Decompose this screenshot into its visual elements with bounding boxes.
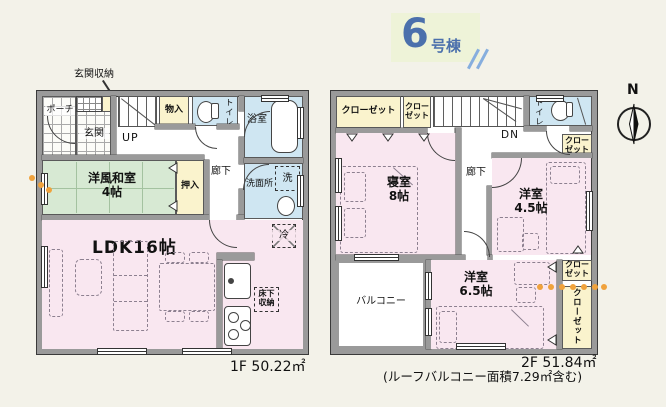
utility-dot	[38, 182, 44, 188]
toilet-door-arc	[195, 127, 217, 149]
wall-segment	[570, 126, 592, 131]
window	[41, 246, 48, 288]
furniture-dining-table	[159, 263, 215, 311]
utility-dot	[548, 284, 554, 290]
tatami-room-name: 洋風和室	[57, 172, 167, 185]
closet-door-marker-icon	[547, 334, 557, 346]
closet-door-marker-icon	[346, 133, 358, 142]
western-room-45-label: 洋室	[496, 188, 566, 201]
entrance-storage-label: 玄関収納	[74, 69, 114, 80]
utility-dot	[559, 284, 565, 290]
closet-door-marker-icon	[572, 245, 584, 254]
furniture-sofa-table	[113, 241, 148, 331]
fridge-label: 冷	[272, 230, 296, 241]
wall-segment	[524, 126, 546, 131]
furniture-chair	[165, 311, 185, 322]
closet-a-label: クローゼット	[336, 107, 401, 117]
stairs-down	[433, 96, 529, 127]
furniture-chair	[189, 252, 209, 263]
furniture-armchair	[75, 259, 102, 296]
toilet-door-arc	[546, 131, 570, 155]
toilet-tank-icon	[211, 103, 219, 119]
floor2-plan: クローゼット クロー ゼット DN トイレ クロー ゼット	[331, 91, 597, 354]
closet-door-marker-icon	[418, 133, 430, 142]
toilet-tank-icon	[566, 102, 573, 117]
window	[536, 95, 564, 102]
furniture-desk	[497, 217, 524, 252]
wall-segment	[217, 124, 239, 129]
bedroom-label: 寝室	[364, 176, 434, 189]
sliding-door-marker-icon	[168, 162, 178, 174]
utility-dot	[46, 187, 52, 193]
balcony-label: バルコニー	[341, 296, 421, 307]
shoe-cabinet	[76, 96, 102, 112]
window	[297, 175, 304, 207]
kitchen-counter-cap	[217, 253, 254, 260]
floor2-area-note: (ルーフバルコニー面積7.29㎡含む)	[383, 370, 582, 384]
window	[335, 206, 342, 241]
western-room-65-size-label: 6.5帖	[441, 285, 511, 298]
window	[425, 272, 432, 300]
floor1-area-label: 1F 50.22㎡	[230, 360, 306, 375]
furniture-pillow	[439, 311, 457, 343]
closet-e-label: クローゼット	[571, 288, 580, 348]
hallway-label-1f: 廊下	[211, 166, 231, 177]
window	[97, 348, 147, 355]
furniture-divider	[114, 301, 147, 302]
floorplan-canvas: 6 号棟 玄関収納 ポーチ 玄関 UP 物入 トイレ	[0, 0, 666, 407]
closet-b-label-2: ゼット	[403, 112, 431, 121]
building-badge: 6 号棟	[391, 13, 480, 62]
utility-dot	[581, 284, 587, 290]
utility-dot	[601, 284, 607, 290]
oshiire-label: 押入	[176, 182, 204, 192]
closet-d-label-2: ゼット	[562, 270, 592, 279]
wall-segment	[217, 260, 222, 349]
closet-door-marker-icon	[382, 133, 394, 142]
closet-door-marker-icon	[547, 261, 557, 273]
window	[297, 107, 304, 139]
window	[335, 158, 342, 193]
storage-label: 物入	[159, 106, 189, 116]
burner-icon	[228, 329, 239, 340]
furniture-chair	[189, 311, 209, 322]
sink-icon	[277, 196, 295, 216]
stairs-down-label: DN	[501, 130, 519, 142]
window	[354, 254, 399, 261]
badge-suffix: 号棟	[431, 35, 461, 56]
utility-dot	[570, 284, 576, 290]
window	[456, 343, 506, 350]
furniture-divider	[114, 275, 147, 276]
badge-number: 6	[401, 11, 429, 57]
utility-dot	[29, 175, 35, 181]
sliding-door-marker-icon	[168, 200, 178, 212]
window	[261, 95, 289, 102]
wall-segment	[204, 160, 209, 215]
furniture-chair	[522, 233, 539, 250]
furniture-chair	[516, 287, 536, 303]
furniture-desk	[514, 262, 550, 285]
burner-icon	[240, 320, 251, 331]
stairs-up-label: UP	[122, 132, 139, 144]
burner-icon	[228, 312, 239, 323]
window	[586, 191, 593, 231]
entrance-label: 玄関	[79, 128, 109, 139]
kitchen-stove	[224, 306, 251, 346]
underfloor-storage-label-2: 収納	[254, 299, 279, 308]
tatami-room-size: 4帖	[57, 186, 167, 199]
bathtub-icon	[271, 100, 298, 153]
western-room-45-size-label: 4.5帖	[496, 202, 566, 215]
wall-segment	[155, 124, 195, 129]
furniture-chair	[165, 252, 185, 263]
toilet-label-1f: トイレ	[223, 98, 232, 126]
window	[425, 308, 432, 336]
utility-dot	[592, 284, 598, 290]
furniture-pillow	[344, 208, 366, 238]
floor1-plan: ポーチ 玄関 UP 物入 トイレ 浴室 洗面所 洗	[37, 91, 308, 354]
porch-label: ポーチ	[45, 106, 75, 116]
wall-segment	[111, 96, 116, 158]
hallway-label-2f: 廊下	[466, 167, 486, 178]
furniture-pillow	[344, 172, 366, 202]
compass-icon	[612, 98, 656, 150]
western-room-65-label: 洋室	[441, 271, 511, 284]
furniture-pillow	[550, 166, 580, 184]
faucet-icon	[228, 278, 234, 284]
window	[182, 348, 232, 355]
shoe-cabinet-shelf	[102, 96, 111, 112]
wall-segment	[456, 128, 461, 255]
toilet-label-2f: トイレ	[533, 98, 542, 126]
furniture-tv-board	[49, 249, 63, 317]
utility-dot	[537, 284, 543, 290]
compass-north-label: N	[627, 83, 639, 98]
bedroom-size-label: 8帖	[364, 190, 434, 203]
